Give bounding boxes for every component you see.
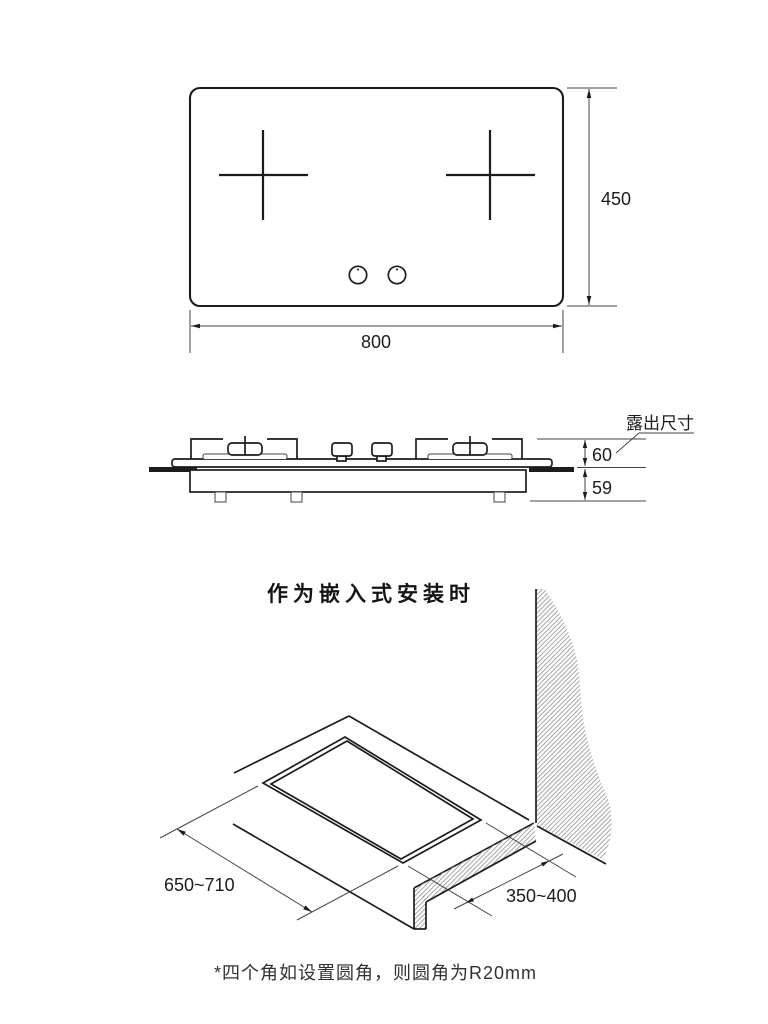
diagram-canvas: 450 800 [0,0,768,1024]
glass-panel [172,459,552,467]
cutout-depth-label: 350~400 [506,886,577,906]
right-burner-side [416,436,522,460]
corner-radius-footnote: *四个角如设置圆角，则圆角为R20mm [214,963,537,983]
cutout-opening [263,737,481,863]
exposed-size-label: 露出尺寸 [626,414,694,433]
cooktop-outline [190,88,563,306]
below-counter-label: 59 [592,478,612,498]
built-in-view: 作为嵌入式安装时 [160,582,612,929]
foot-left [215,492,226,502]
right-knob-indicator [396,269,398,271]
wall [536,589,612,860]
cooktop-installation-diagram: 450 800 [0,0,768,1024]
width-dimension: 800 [190,310,563,353]
height-dimension: 450 [567,88,631,306]
height-label: 450 [601,189,631,209]
exposed-size-callout: 露出尺寸 [616,414,694,453]
cutout-length-label: 650~710 [164,875,235,895]
side-view: 60 59 露出尺寸 [149,414,694,502]
foot-right [494,492,505,502]
left-knob-indicator [357,269,359,271]
left-burner-side [191,436,297,460]
width-label: 800 [361,332,391,352]
top-view: 450 800 [190,88,631,353]
wall-hatch [536,589,612,860]
stove-body [190,470,526,492]
above-counter-label: 60 [592,445,612,465]
foot-middle [291,492,302,502]
built-in-title: 作为嵌入式安装时 [267,582,475,606]
